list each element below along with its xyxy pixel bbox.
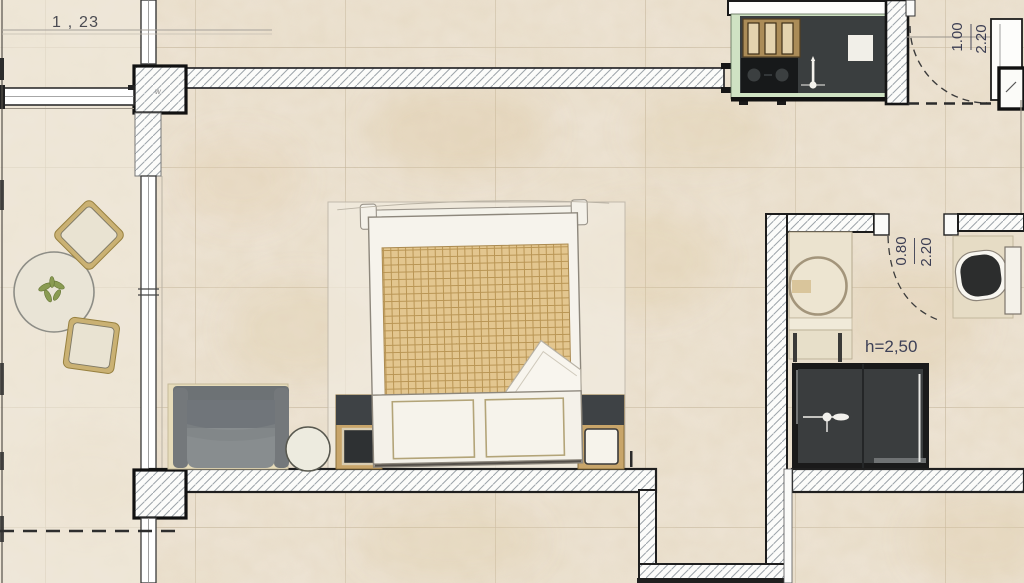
svg-text:0.80: 0.80 [893,236,910,265]
svg-text:2.20: 2.20 [918,237,935,266]
svg-text:h=2,50: h=2,50 [865,337,917,356]
svg-text:2.20: 2.20 [973,24,990,53]
svg-text:1.00: 1.00 [949,22,966,51]
svg-text:1 , 23: 1 , 23 [52,14,99,31]
